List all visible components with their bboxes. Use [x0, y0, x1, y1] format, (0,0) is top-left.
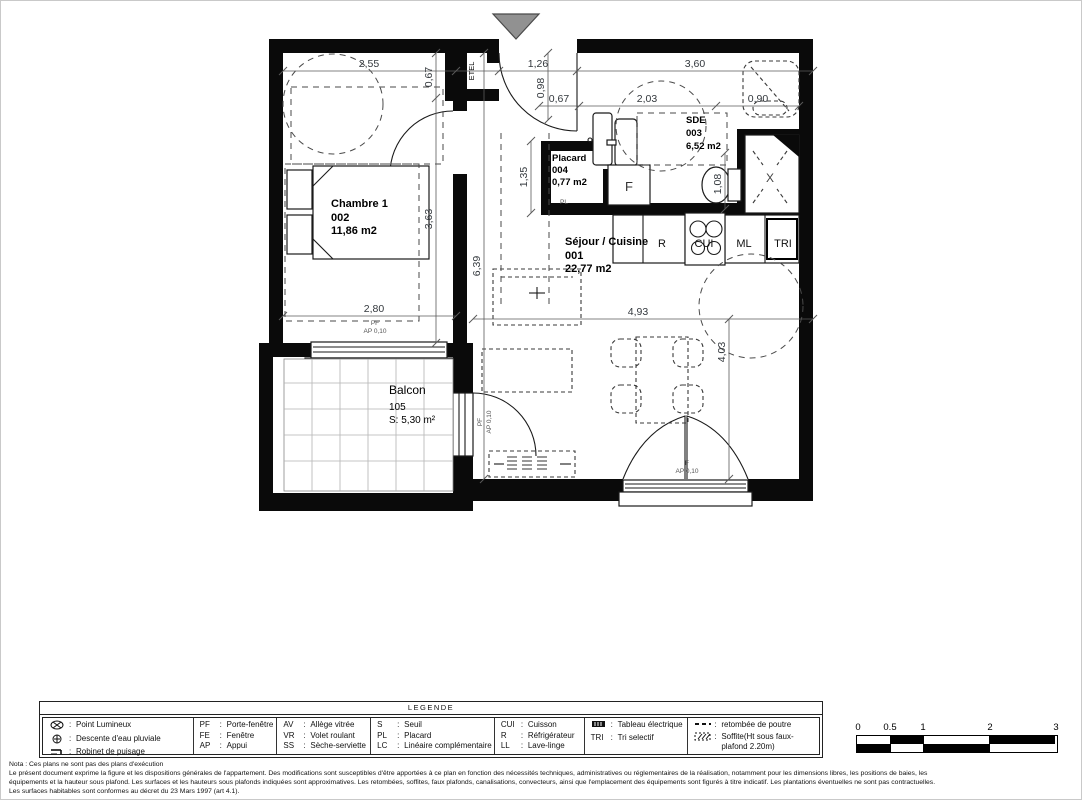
plan-notes: Nota : Ces plans ne sont pas des plans d… — [9, 760, 1075, 796]
floorplan-page: Chambre 1 002 11,86 m2 Séjour / Cuisine … — [0, 0, 1082, 800]
bed — [287, 166, 429, 259]
dim: 1,35 — [518, 167, 530, 188]
dim: 0,90 — [748, 93, 769, 105]
anno-ap: AP 0,10 — [486, 410, 493, 433]
sde-door-leaf — [615, 119, 637, 166]
point-lumineux-icon — [49, 720, 69, 734]
vanity-dashed — [743, 61, 799, 117]
scale-bar: 0 0.5 1 2 3 — [856, 722, 1064, 756]
room-label-chambre: Chambre 1 — [331, 198, 388, 210]
anno-ap: AP 0,10 — [363, 328, 386, 335]
descente-eau-icon — [49, 734, 69, 748]
room-area-sejour: 22,77 m2 — [565, 263, 611, 275]
tableau-electrique-icon — [591, 720, 611, 733]
scale-bar-graphic — [856, 735, 1058, 753]
dining-table — [636, 337, 688, 423]
room-num-sde: 003 — [686, 128, 702, 139]
dim: 1,08 — [712, 174, 724, 195]
room-num-sejour: 001 — [565, 250, 583, 262]
closet-door-leaf — [593, 113, 612, 165]
dim: 1,26 — [528, 58, 549, 70]
balcony-window — [311, 342, 447, 358]
legend-col-openings: PF:Porte-fenêtre FE:Fenêtre AP:Appui — [193, 718, 277, 754]
scale-tick-labels: 0 0.5 1 2 3 — [856, 722, 1064, 734]
shower-label: X — [766, 171, 774, 185]
anno-pf: PF — [477, 418, 484, 426]
tri-label: TRI — [774, 238, 792, 250]
room-num-chambre: 002 — [331, 212, 349, 224]
legend-col-misc: S:Seuil PL:Placard LC:Linéaire complémen… — [370, 718, 494, 754]
room-area-balcon: S: 5,30 m² — [389, 415, 436, 426]
note-line: Le présent document exprime la figure et… — [9, 769, 1075, 778]
living-window — [623, 480, 748, 492]
dim: 6,39 — [471, 256, 483, 277]
note-line: Les surfaces habitables sont conformes a… — [9, 787, 1075, 796]
legend-col-glazing: AV:Allège vitrée VR:Volet roulant SS:Sèc… — [276, 718, 370, 754]
nightstand — [287, 170, 312, 209]
dim: 4,03 — [716, 342, 728, 363]
room-area-sde: 6,52 m2 — [686, 141, 721, 152]
etel-label: ETEL — [467, 62, 476, 81]
room-label-sejour: Séjour / Cuisine — [565, 236, 648, 248]
room-num-balcon: 105 — [389, 402, 406, 413]
dim: 0,98 — [535, 78, 547, 99]
legend-label: Point Lumineux — [76, 720, 193, 731]
legend-col-electric: : Tableau électrique TRI:Tri selectif — [584, 718, 688, 754]
dim: 3,60 — [685, 58, 706, 70]
legend-label: Descente d'eau pluviale — [76, 734, 193, 745]
robinet-icon — [49, 747, 69, 761]
legend-col-ceiling: : retombée de poutre : Soffite(Ht sous f… — [687, 718, 819, 754]
dim: 3,63 — [423, 209, 435, 230]
room-label-placard: Placard — [552, 153, 587, 164]
fridge-label: F — [625, 179, 633, 194]
washer-label: ML — [736, 238, 751, 250]
floorplan-drawing: Chambre 1 002 11,86 m2 Séjour / Cuisine … — [1, 1, 1082, 701]
refrigerator-label: R — [658, 238, 666, 250]
dim: 2,03 — [637, 93, 658, 105]
bedroom-door-arc — [390, 111, 453, 174]
anno-pf: PF — [371, 320, 379, 327]
room-area-placard: 0,77 m2 — [552, 177, 587, 188]
retombee-poutre-icon — [694, 720, 714, 732]
nightstand — [287, 215, 312, 254]
dim: 0,67 — [549, 93, 570, 105]
dim: 2,55 — [359, 58, 380, 70]
legend-body: : Point Lumineux : Descente d'eau pluvia… — [42, 717, 820, 755]
note-line: Nota : Ces plans ne sont pas des plans d… — [9, 760, 1075, 769]
cooktop-label: CUI — [695, 238, 714, 250]
legend-col-symbols: : Point Lumineux : Descente d'eau pluvia… — [43, 718, 193, 754]
pl-label: PL — [560, 199, 568, 206]
legend-label: Robinet de puisage — [76, 747, 193, 758]
legend-title: LEGENDE — [40, 702, 822, 715]
legend-col-appliances: CUI:Cuisson R:Réfrigérateur LL:Lave-ling… — [494, 718, 584, 754]
anno-ap: AP 0,10 — [675, 468, 698, 475]
legend-box: LEGENDE : Point Lumineux : Descente d'ea… — [39, 701, 823, 758]
room-area-chambre: 11,86 m2 — [331, 225, 377, 237]
living-furniture-dashed — [482, 269, 703, 477]
room-label-sde: SDE — [686, 115, 706, 126]
room-label-balcon: Balcon — [389, 383, 426, 397]
balcony-side-door — [453, 393, 473, 456]
tv-cabinet — [482, 349, 572, 392]
entrance-arrow-icon — [493, 14, 539, 39]
note-line: équipements et la hauteur sous plafond. … — [9, 778, 1075, 787]
dim: 0,67 — [423, 67, 435, 88]
dim: 4,93 — [628, 306, 649, 318]
dim: 2,80 — [364, 303, 385, 315]
room-num-placard: 004 — [552, 165, 569, 176]
soffite-icon — [694, 732, 714, 745]
anno-f: F — [685, 460, 689, 467]
